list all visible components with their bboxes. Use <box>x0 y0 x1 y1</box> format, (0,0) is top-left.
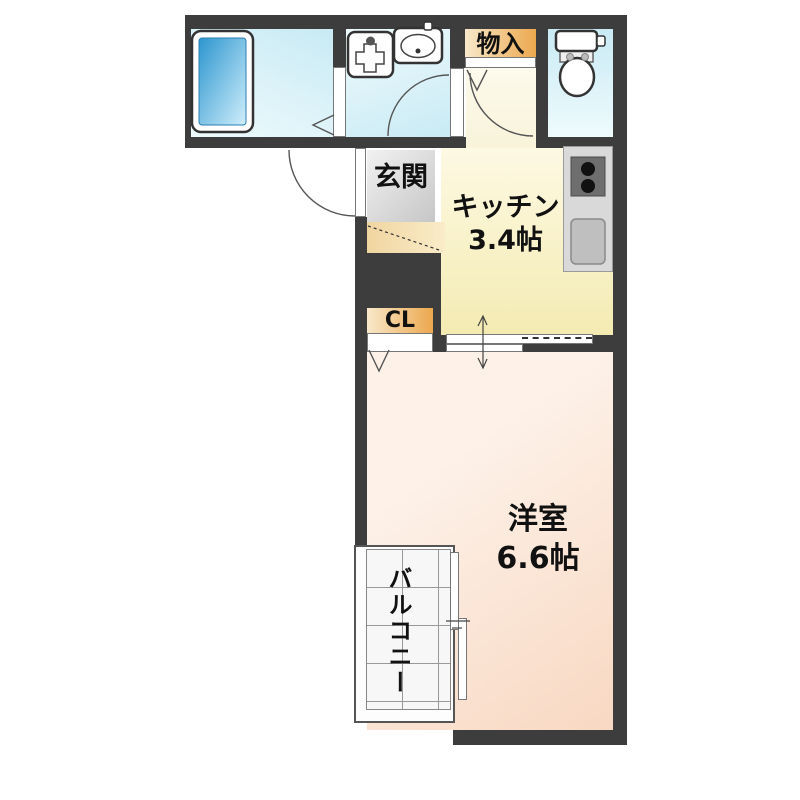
wall-segment <box>523 344 613 352</box>
wall-segment <box>613 148 627 352</box>
balcony-window-sash-2 <box>458 618 467 700</box>
room-label: 洋室 <box>468 503 608 537</box>
wall-segment <box>453 730 627 745</box>
storage-door-track <box>465 57 536 68</box>
wall-segment <box>593 334 613 344</box>
wall-segment <box>185 137 467 148</box>
floor-plan: 物入 玄関 キッチン 3.4帖 CL 洋室 6.6帖 バルコニー <box>0 0 800 800</box>
sliding-door-dashed-track <box>522 337 592 339</box>
wall-segment <box>185 15 627 29</box>
entrance-label: 玄関 <box>367 163 435 193</box>
washroom-door <box>450 68 464 137</box>
wall-segment <box>333 29 346 67</box>
storage-label: 物入 <box>465 31 536 57</box>
kitchen-size-label: 3.4帖 <box>433 226 578 255</box>
closet-door-track <box>367 333 433 352</box>
closet-label: CL <box>367 309 433 332</box>
washroom-floor <box>346 29 450 137</box>
wall-segment <box>613 29 627 137</box>
toilet-room-floor <box>548 29 613 137</box>
bathroom-floor <box>191 29 333 137</box>
balcony-label: バルコニー <box>386 551 416 711</box>
entrance-door-leaf <box>355 148 366 217</box>
bath-folding-door <box>333 67 346 137</box>
wall-segment <box>536 29 548 137</box>
kitchen-label: キッチン <box>433 193 578 222</box>
room-size-label: 6.6帖 <box>468 542 608 576</box>
wall-segment <box>613 352 627 745</box>
sliding-door-track-upper <box>446 334 593 344</box>
hallway-floor <box>466 57 536 148</box>
sliding-door-track-lower <box>446 344 523 352</box>
